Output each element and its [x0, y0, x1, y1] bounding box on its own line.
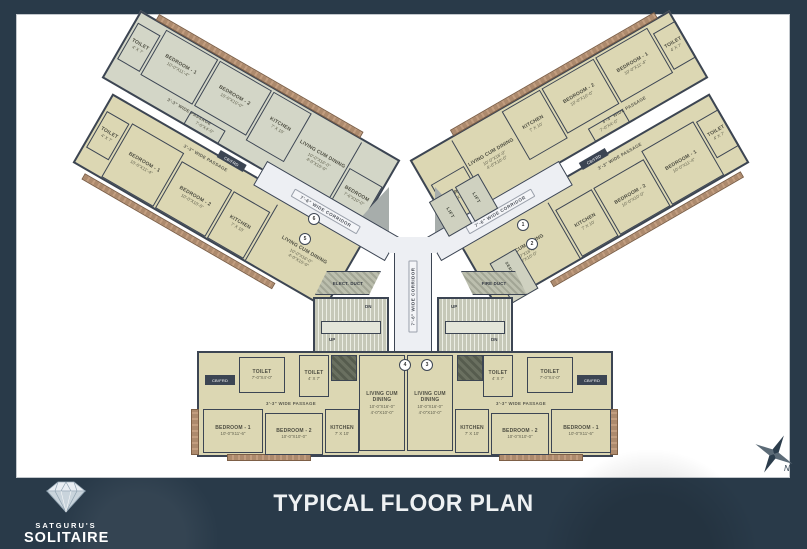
kitchen: KITCHEN7' X 10'	[325, 409, 359, 453]
page-title: TYPICAL FLOOR PLAN	[20, 490, 787, 518]
cbfrd-tag: CB/FRD	[577, 375, 607, 385]
brand-name-bottom: SOLITAIRE	[24, 530, 108, 546]
staircase-left: DN UP	[313, 297, 389, 353]
bedroom-2: BEDROOM - 210'-0"X10'-0"	[265, 413, 323, 455]
bedroom-1: BEDROOM - 110'-0"X11'-6"	[551, 409, 611, 453]
floor-plan-page: TOILET4' X 7' BEDROOM - 110'-0"X11'-4" B…	[0, 0, 807, 549]
bedroom-2: BEDROOM - 210'-0"X10'-0"	[491, 413, 549, 455]
stair-landing	[445, 321, 505, 334]
balcony-strip	[227, 454, 311, 461]
bedroom-1: BEDROOM - 110'-0"X11'-6"	[203, 409, 263, 453]
toilet: TOILET4' X 7'	[299, 355, 329, 397]
footer-band: SATGURU'S SOLITAIRE TYPICAL FLOOR PLAN	[0, 478, 807, 549]
toilet: TOILET7'-0"X4'-0"	[239, 357, 285, 393]
cbfrd-tag: CB/FRD	[205, 375, 235, 385]
staircase-right: UP DN	[437, 297, 513, 353]
unit-number-6: 6	[308, 213, 320, 225]
unit-number-5: 5	[299, 233, 311, 245]
brand-name-top: SATGURU'S	[24, 521, 108, 530]
unit-number-3: 3	[421, 359, 433, 371]
unit-number-1: 1	[517, 219, 529, 231]
unit-number-4: 4	[399, 359, 411, 371]
balcony-strip	[191, 409, 199, 455]
passage-label: 3'-3" WIDE PASSAGE	[455, 397, 587, 409]
living-cum-dining: LIVING CUM DINING10'-0"X16'-0"4'-0"X10'-…	[359, 355, 405, 451]
corridor-vertical: 7'-6" WIDE CORRIDOR	[394, 239, 432, 353]
balcony-strip	[610, 409, 618, 455]
corridor-junction	[389, 237, 437, 253]
toilet: TOILET7'-0"X4'-0"	[527, 357, 573, 393]
svg-text:N: N	[784, 464, 790, 473]
duct-box	[457, 355, 483, 381]
toilet: TOILET4' X 7'	[483, 355, 513, 397]
kitchen: KITCHEN7' X 10'	[455, 409, 489, 453]
balcony-strip	[499, 454, 583, 461]
north-arrow-icon: N	[751, 431, 797, 477]
unit-number-2: 2	[526, 238, 538, 250]
duct-box	[331, 355, 357, 381]
stair-landing	[321, 321, 381, 334]
passage-label: 3'-3" WIDE PASSAGE	[225, 397, 357, 409]
plan-canvas: TOILET4' X 7' BEDROOM - 110'-0"X11'-4" B…	[16, 14, 790, 478]
